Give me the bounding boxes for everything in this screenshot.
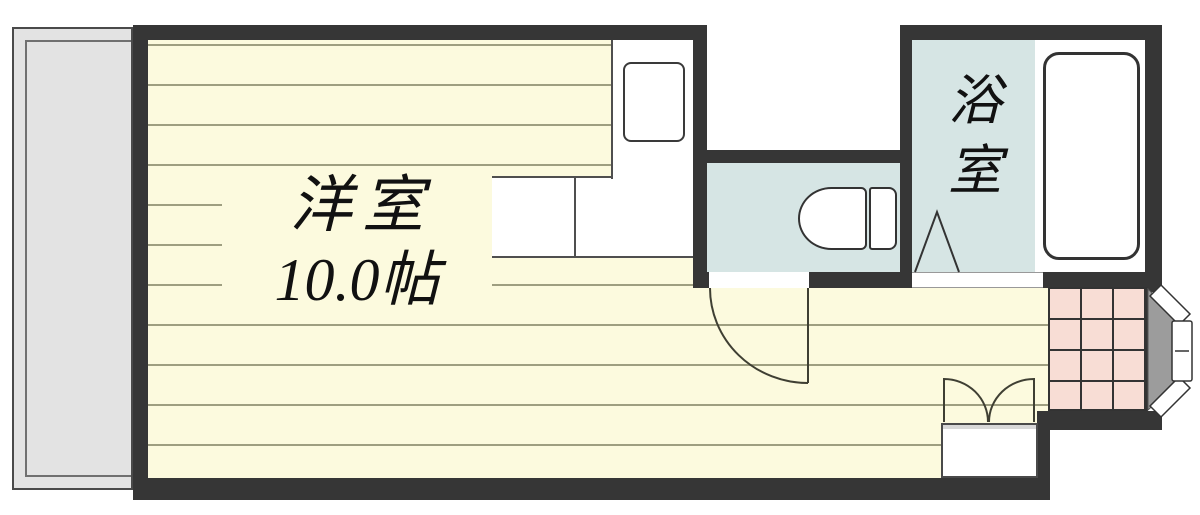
- balcony: [12, 27, 133, 490]
- bathroom-label-char: 浴: [930, 66, 1020, 136]
- kitchen-outline-line: [489, 176, 613, 178]
- entrance-tiles: [1048, 287, 1148, 411]
- bathroom-label-char: 室: [930, 136, 1020, 206]
- shoe-cabinet: [941, 423, 1038, 478]
- outside-notch: [695, 40, 900, 150]
- wall-bottom: [133, 478, 1050, 500]
- kitchen-outline-line: [611, 40, 613, 179]
- wall-entrance-bottom: [1037, 411, 1162, 430]
- toilet-door-opening: [709, 272, 809, 288]
- bathroom-label: 浴 室: [930, 66, 1020, 206]
- wall-entrance-connector: [1037, 411, 1050, 500]
- wall-bath-left: [900, 25, 912, 288]
- main-room-size: 10.0帖: [222, 242, 492, 318]
- main-room-label: 洋室 10.0帖: [222, 170, 492, 318]
- toilet-icon: [798, 187, 867, 250]
- entrance-door-recess: [1148, 289, 1191, 410]
- balcony-inner-line: [25, 40, 131, 477]
- stove-icon: [623, 62, 685, 142]
- floor-plan-canvas: 洋室 10.0帖 浴 室: [0, 0, 1200, 515]
- main-room-name: 洋室: [222, 170, 492, 242]
- wall-top-right: [900, 25, 1162, 40]
- bath-door-opening: [912, 272, 1043, 288]
- wall-left: [133, 25, 148, 500]
- entrance-door-leaf: [1172, 321, 1192, 381]
- wall-right: [1145, 25, 1162, 292]
- toilet-tank-icon: [869, 187, 897, 250]
- bathtub-icon: [1043, 52, 1140, 260]
- wall-toilet-top: [693, 150, 912, 163]
- kitchen-outline-line: [488, 256, 694, 258]
- wall-top-left: [133, 25, 707, 40]
- kitchen-counter-lower: [490, 177, 693, 258]
- kitchen-divider-line: [574, 177, 576, 257]
